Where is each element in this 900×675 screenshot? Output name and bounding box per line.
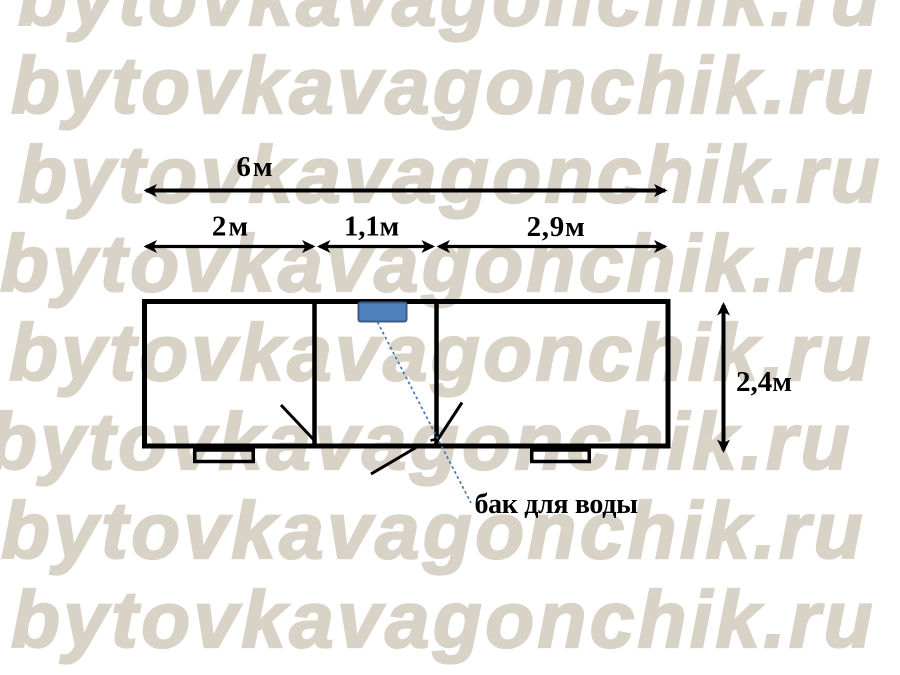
svg-text:2м: 2м bbox=[212, 211, 250, 243]
svg-text:bytovkavagonchik.ru: bytovkavagonchik.ru bbox=[11, 575, 876, 664]
svg-text:bytovkavagonchik.ru: bytovkavagonchik.ru bbox=[18, 0, 883, 42]
svg-text:bytovkavagonchik.ru: bytovkavagonchik.ru bbox=[1, 486, 866, 575]
svg-text:2,4м: 2,4м bbox=[736, 366, 792, 398]
svg-text:1,1м: 1,1м bbox=[344, 211, 399, 243]
svg-text:бак для воды: бак для воды bbox=[475, 489, 639, 520]
svg-text:bytovkavagonchik.ru: bytovkavagonchik.ru bbox=[11, 41, 876, 130]
svg-text:bytovkavagonchik.ru: bytovkavagonchik.ru bbox=[18, 130, 883, 219]
svg-text:bytovkavagonchik.ru: bytovkavagonchik.ru bbox=[0, 219, 865, 308]
svg-text:2,9м: 2,9м bbox=[527, 211, 586, 243]
svg-text:6м: 6м bbox=[236, 151, 274, 183]
